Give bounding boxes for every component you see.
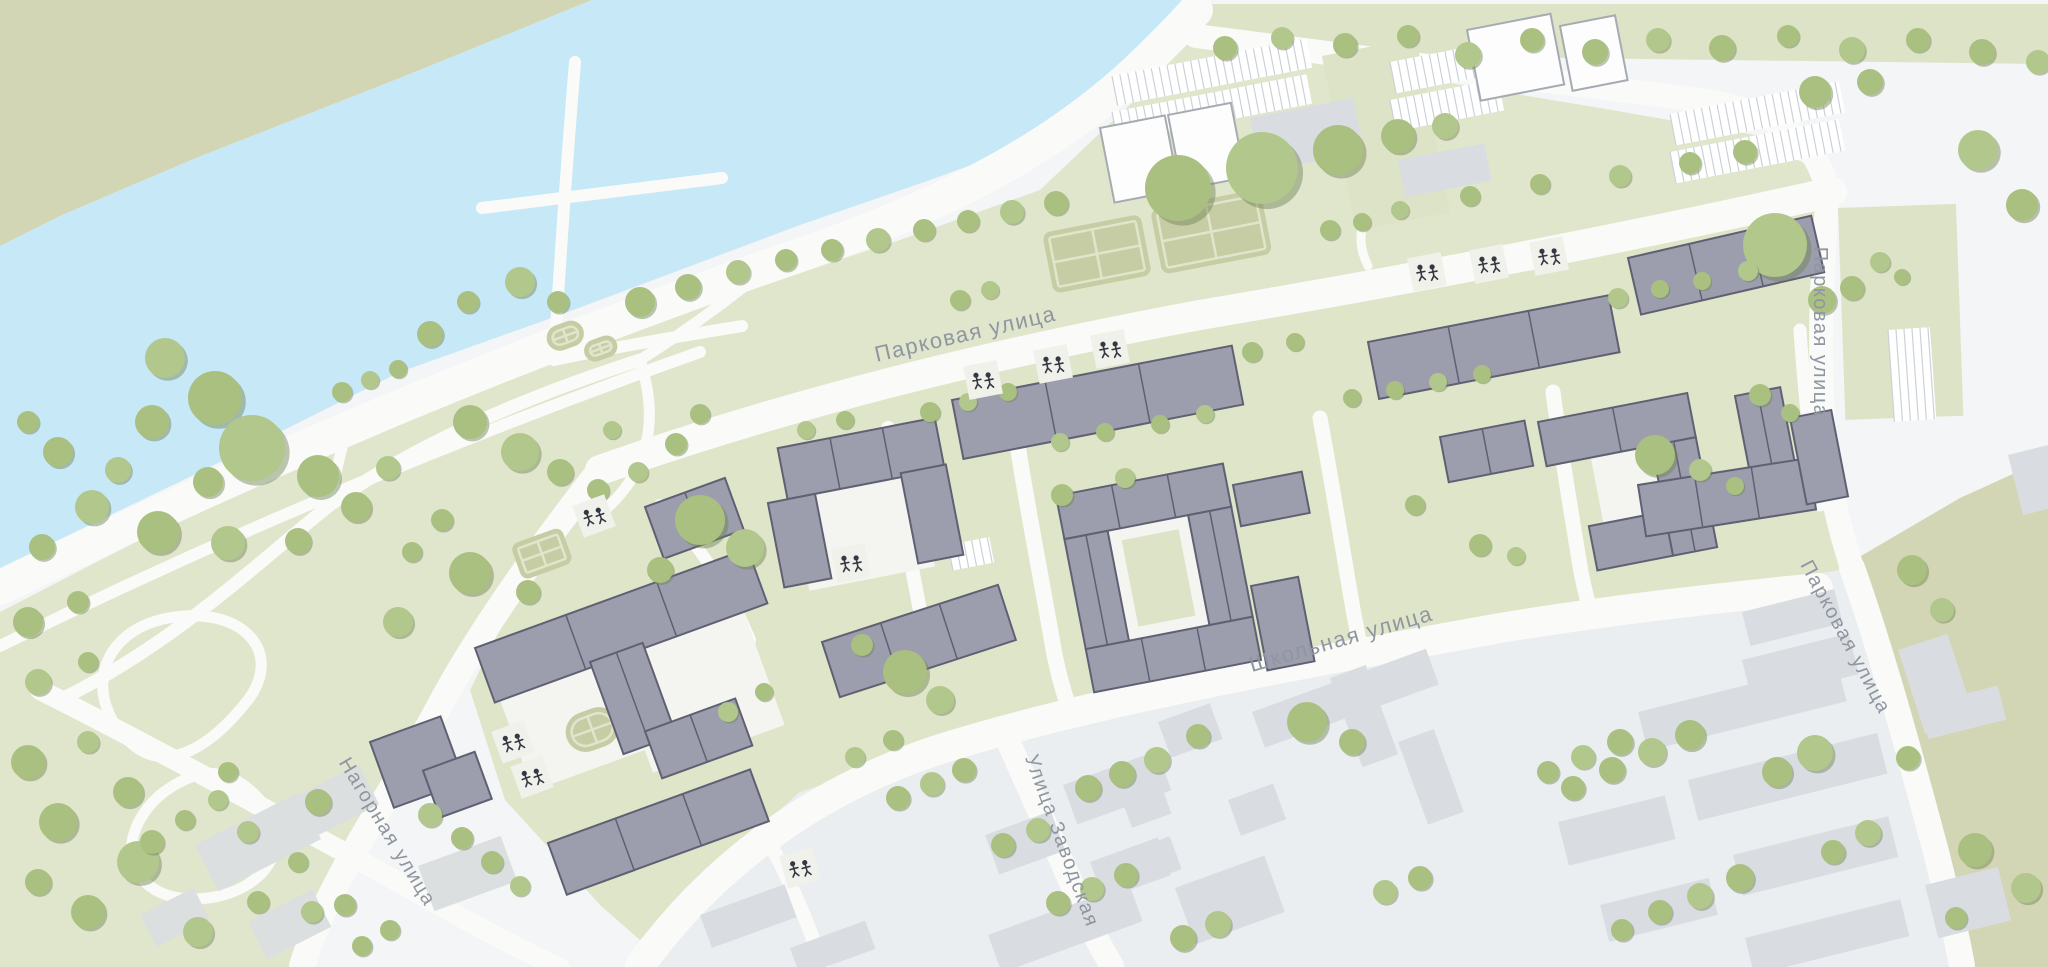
parking-stalls-icon — [1888, 327, 1936, 422]
children-playing-icon — [1407, 252, 1447, 292]
children-playing-icon — [963, 360, 1003, 400]
map-generated-layers — [0, 0, 2048, 967]
building-new — [1056, 464, 1261, 693]
street-label-parkovaya-north: Парковая улица — [1809, 247, 1831, 418]
children-playing-icon — [831, 543, 871, 583]
children-playing-icon — [1529, 236, 1569, 276]
children-playing-icon — [1469, 244, 1509, 284]
masterplan-map[interactable]: Парковая улица Парковая улица Парковая у… — [0, 0, 2048, 967]
map-canvas[interactable]: Парковая улица Парковая улица Парковая у… — [0, 0, 2048, 967]
children-playing-icon — [1090, 329, 1130, 369]
children-playing-icon — [1033, 344, 1073, 384]
